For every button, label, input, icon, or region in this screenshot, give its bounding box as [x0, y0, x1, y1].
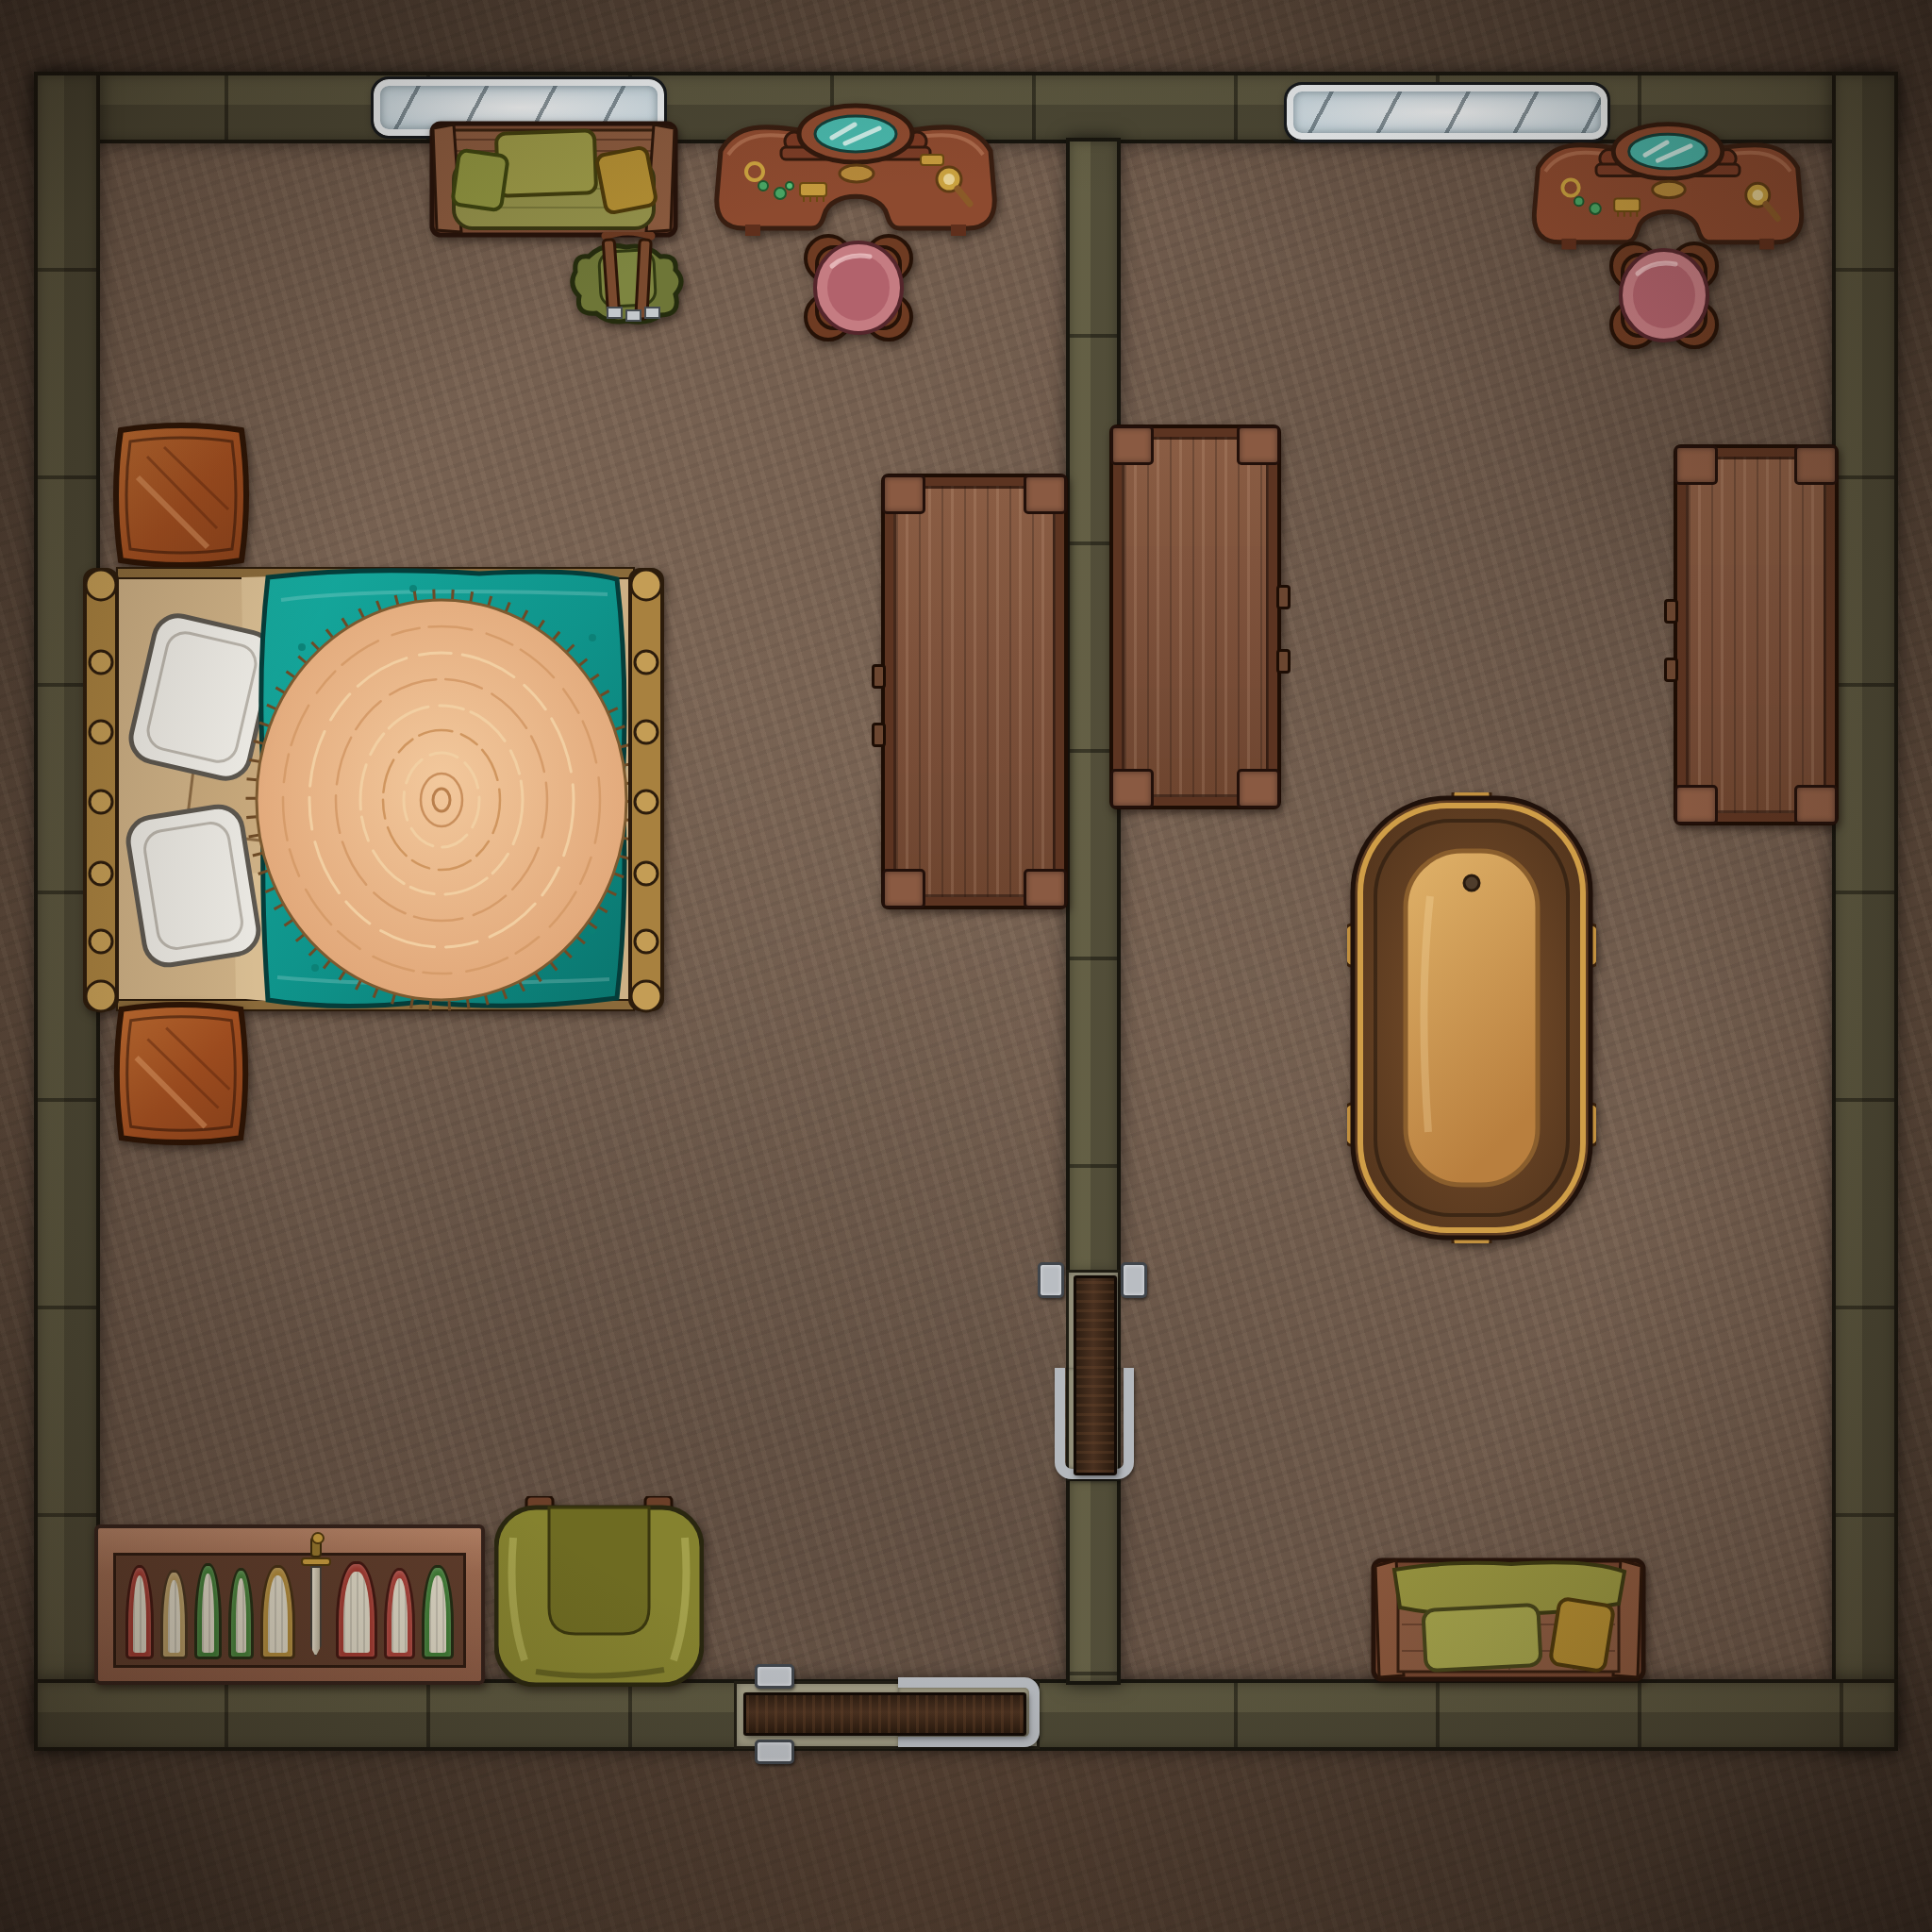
sofa-green	[429, 121, 678, 238]
comb-icon	[800, 183, 826, 196]
table-top	[1686, 457, 1826, 813]
sofa-pillow-left	[452, 150, 508, 211]
book	[422, 1565, 454, 1659]
book	[160, 1570, 188, 1659]
door-hinge-icon	[755, 1664, 794, 1689]
chest-south	[106, 998, 257, 1149]
bench-pillow-mustard	[1550, 1598, 1614, 1672]
sofa-pillow-right	[596, 146, 658, 213]
wall-east	[1832, 72, 1898, 1751]
book	[336, 1561, 376, 1659]
sword-icon	[302, 1537, 329, 1659]
book	[228, 1568, 254, 1659]
table-east-by-east-wall	[1674, 444, 1839, 825]
backpack	[568, 232, 687, 325]
stool-east	[1606, 234, 1723, 357]
bed-pillow	[125, 803, 261, 968]
table-top	[1122, 437, 1269, 797]
door-hinge-icon	[1038, 1262, 1064, 1298]
vanity-west	[713, 98, 998, 247]
table-east-by-wall	[1109, 425, 1281, 809]
book	[194, 1563, 222, 1659]
door-hinge-icon	[755, 1740, 794, 1764]
drain-icon	[1464, 875, 1479, 891]
bench-green	[1370, 1555, 1647, 1685]
mirror-glass	[815, 116, 896, 152]
bathtub	[1347, 792, 1596, 1243]
stool-west	[800, 226, 917, 349]
table-top	[893, 486, 1056, 897]
bench-pillow-green	[1423, 1605, 1541, 1671]
chest-north	[106, 419, 257, 572]
sofa-pillow-center	[496, 130, 596, 196]
door-south	[743, 1692, 1026, 1736]
armchair-green	[494, 1496, 704, 1687]
book	[260, 1565, 295, 1659]
bookshelf-row	[113, 1553, 466, 1668]
battlemap	[0, 0, 1932, 1932]
armchair-seat	[549, 1507, 649, 1634]
bookshelf	[94, 1524, 485, 1685]
bed	[83, 562, 664, 1017]
door-divider	[1074, 1275, 1117, 1475]
mirror-glass	[1629, 134, 1707, 169]
table-west	[881, 474, 1068, 909]
book	[125, 1565, 154, 1659]
door-hinge-icon	[1121, 1262, 1147, 1298]
book	[384, 1568, 416, 1659]
wall-divider-lower	[1066, 1475, 1121, 1685]
